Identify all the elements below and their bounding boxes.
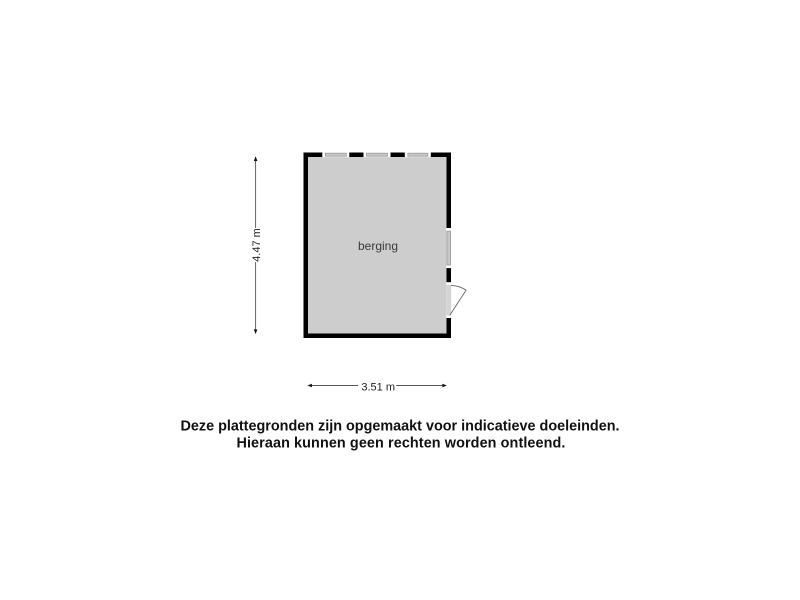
svg-text:3.51 m: 3.51 m bbox=[361, 381, 395, 393]
svg-text:4.47 m: 4.47 m bbox=[251, 228, 263, 262]
svg-text:Deze plattegronden zijn opgema: Deze plattegronden zijn opgemaakt voor i… bbox=[181, 419, 620, 435]
svg-text:Hieraan kunnen geen rechten wo: Hieraan kunnen geen rechten worden ontle… bbox=[236, 436, 565, 452]
svg-text:berging: berging bbox=[358, 239, 398, 253]
